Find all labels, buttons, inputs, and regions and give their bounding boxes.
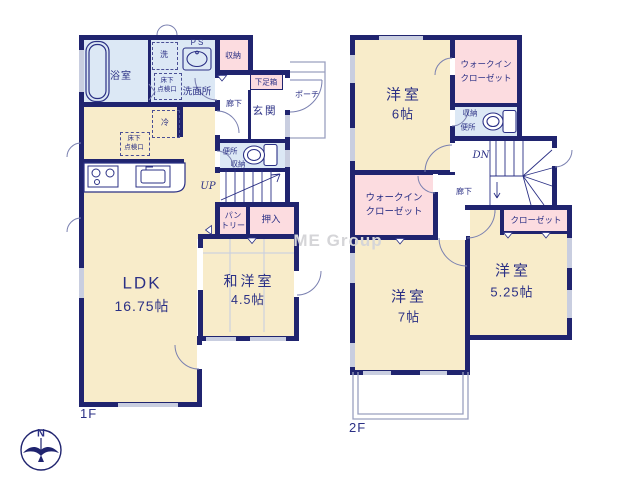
label-underfloor: 点検口 <box>157 87 177 94</box>
watermark: ME Group <box>293 231 382 251</box>
window <box>350 55 355 83</box>
window <box>363 371 391 375</box>
wall <box>450 103 522 107</box>
label-tatami: 和洋室 <box>224 274 275 288</box>
door-opening <box>552 148 557 166</box>
window <box>79 268 84 298</box>
door-opening <box>215 111 220 135</box>
label-toilet-2f: 便所 <box>461 123 476 131</box>
door-opening <box>438 235 466 240</box>
label-ps: PS <box>191 39 206 47</box>
label-toilet-1f: 便所 <box>223 147 238 155</box>
porch-outline <box>290 62 325 138</box>
label-underfloor: 点検口 <box>124 145 144 152</box>
floor-plan: 浴室 洗 PS 洗面所 床下 点検口 収納 廊下 下足箱 玄関 ポーチ 冷 床下… <box>0 0 640 480</box>
door-opening <box>285 78 290 110</box>
label-washroom: 洗面所 <box>183 87 212 97</box>
label-wic-left: クローゼット <box>365 207 422 217</box>
label-wic-top: ウォークイン <box>460 60 511 69</box>
floor1-label: 1F <box>80 406 97 421</box>
wall <box>567 205 572 340</box>
wall <box>465 335 572 340</box>
label-toilet-storage: 収納 <box>231 160 246 168</box>
window <box>420 371 447 375</box>
wall <box>465 205 572 210</box>
door-opening <box>450 110 455 126</box>
wall <box>504 231 567 234</box>
door-arc-tatami-ext <box>297 271 321 295</box>
vent-arc <box>157 25 177 35</box>
window <box>350 128 355 161</box>
window <box>250 337 286 341</box>
label-bed7: 洋室 <box>391 290 427 305</box>
wall <box>84 159 184 163</box>
wall <box>517 35 522 141</box>
label-closet-2f: クローゼット <box>510 216 561 225</box>
label-pantry: トリー <box>221 222 245 230</box>
window <box>567 290 572 318</box>
wall <box>450 136 557 141</box>
wall <box>215 139 290 143</box>
wall <box>215 168 290 172</box>
label-stairs-down: DN <box>473 151 490 161</box>
label-bed6-size: 6帖 <box>392 108 414 121</box>
window <box>285 150 290 167</box>
window <box>350 253 355 283</box>
window <box>567 238 572 268</box>
window <box>206 337 236 341</box>
stairs-down-icon <box>490 141 552 205</box>
label-tatami-size: 4.5帖 <box>231 294 265 307</box>
label-storage-1f: 収納 <box>225 52 241 60</box>
door-opening <box>215 78 220 100</box>
wall <box>215 202 299 207</box>
label-underfloor: 床下 <box>161 78 174 85</box>
door-arc-stairs-ext <box>555 150 572 167</box>
window <box>118 403 178 407</box>
label-storage-2f: 収納 <box>463 109 478 117</box>
label-bed525-size: 5.25帖 <box>490 286 533 299</box>
compass-north-label: N <box>37 429 45 440</box>
label-oshiire: 押入 <box>261 215 280 225</box>
label-underfloor: 床下 <box>128 136 141 143</box>
label-laundry: 洗 <box>160 51 168 59</box>
label-hall-1f: 廊下 <box>226 100 242 108</box>
label-bed7-size: 7帖 <box>398 311 420 324</box>
label-bed6: 洋室 <box>386 88 422 103</box>
label-bath: 浴室 <box>110 72 132 82</box>
label-entrance: 玄関 <box>253 106 278 117</box>
label-ldk: LDK <box>122 275 161 292</box>
door-opening <box>450 143 455 172</box>
wall <box>248 90 251 139</box>
door-opening <box>465 210 470 236</box>
door-opening <box>433 174 438 192</box>
wall <box>198 234 299 239</box>
wall <box>79 102 220 107</box>
label-pantry: パン <box>225 212 241 220</box>
wall <box>350 35 522 40</box>
label-wic-top: クローゼット <box>460 74 511 83</box>
label-fridge: 冷 <box>161 119 169 127</box>
door-opening <box>198 248 203 290</box>
window <box>350 343 355 367</box>
wall <box>248 35 253 75</box>
window <box>285 115 290 137</box>
label-bed525: 洋室 <box>495 264 531 279</box>
room-wic-top <box>455 40 517 103</box>
floor2-label: 2F <box>349 420 366 435</box>
label-porch: ポーチ <box>295 91 319 99</box>
label-wic-left: ウォークイン <box>365 193 422 203</box>
wall <box>350 35 355 375</box>
label-stairs-up: UP <box>200 182 215 192</box>
balcony-outline <box>353 372 468 419</box>
door-opening <box>450 58 455 75</box>
window <box>79 50 84 92</box>
label-ldk-size: 16.75帖 <box>114 299 169 313</box>
door-opening <box>215 151 220 167</box>
label-hall-2f: 廊下 <box>456 188 472 196</box>
window <box>379 36 423 40</box>
wall <box>350 170 455 175</box>
door-opening <box>197 345 202 369</box>
wall <box>148 38 151 102</box>
door-opening <box>294 271 299 297</box>
wall <box>79 35 253 40</box>
label-shoe-box: 下足箱 <box>255 78 278 86</box>
room-wic-left <box>355 175 433 235</box>
